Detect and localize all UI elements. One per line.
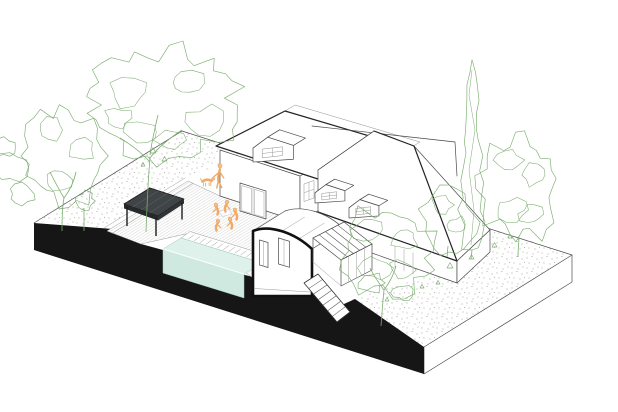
shrubs-left-edge [0, 137, 35, 206]
gable-window [304, 181, 314, 202]
axonometric-house-illustration [0, 0, 618, 412]
illustration-canvas [0, 0, 618, 412]
